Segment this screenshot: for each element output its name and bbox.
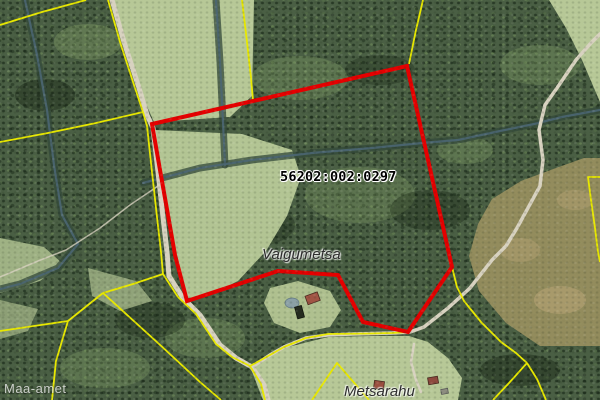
map-canvas[interactable]: 56202:002:0297 Vaigumetsa Metsarahu Maa-… <box>0 0 600 400</box>
clearcut-area <box>469 158 600 346</box>
aerial-imagery-layer <box>0 0 600 400</box>
